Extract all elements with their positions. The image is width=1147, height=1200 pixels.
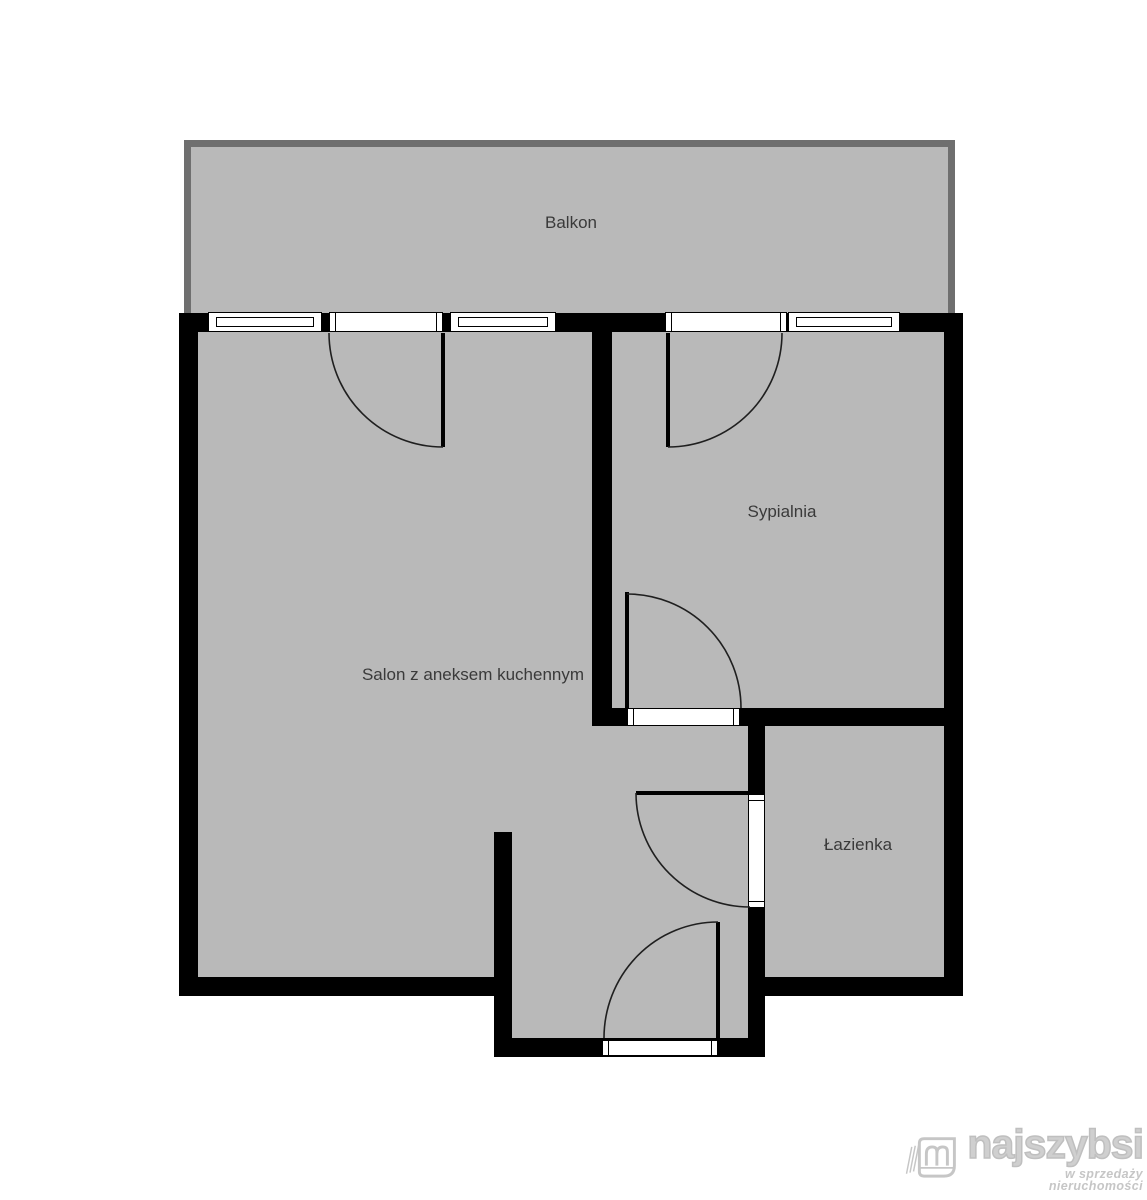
window-glass: [216, 317, 314, 327]
hallway-area: [512, 708, 748, 1038]
bedroom-label: Sypialnia: [748, 502, 817, 522]
window: [450, 312, 556, 332]
brand-tagline: w sprzedaży nieruchomości: [967, 1168, 1143, 1193]
door-frame-post: [711, 1041, 712, 1055]
brand-text-block: najszybsi w sprzedaży nieruchomości: [967, 1124, 1143, 1193]
brand-watermark: najszybsi w sprzedaży nieruchomości: [903, 1122, 1143, 1194]
brand-name: najszybsi: [967, 1124, 1143, 1165]
door-frame-post: [749, 800, 764, 801]
window-glass: [796, 317, 892, 327]
bathroom-door-opening: [748, 794, 765, 908]
door-frame-post: [733, 709, 734, 725]
wall-living-bedroom: [592, 331, 612, 713]
entrance-door-opening: [602, 1040, 718, 1056]
window: [788, 312, 900, 332]
brand-logo-icon: [903, 1123, 961, 1193]
floor-plan: Balkon Salon z aneksem kuchennym Sypialn…: [0, 0, 1147, 1200]
door-frame-post: [436, 313, 437, 331]
door-frame-post: [335, 313, 336, 331]
bedroom-door-opening: [627, 708, 740, 726]
balcony-door-opening-living: [329, 312, 443, 332]
living-room-label: Salon z aneksem kuchennym: [362, 665, 584, 685]
wall-exterior-right: [944, 313, 963, 996]
door-frame-post: [608, 1041, 609, 1055]
wall-exterior-left: [179, 313, 198, 996]
door-frame-post: [671, 313, 672, 331]
wall-bathroom-bottom: [748, 977, 963, 996]
balcony-label: Balkon: [545, 213, 597, 233]
balcony-door-opening-bedroom: [665, 312, 787, 332]
door-frame-post: [633, 709, 634, 725]
door-frame-post: [780, 313, 781, 331]
wall-hallway-left: [494, 832, 512, 1057]
window-glass: [458, 317, 548, 327]
wall-living-bottom: [179, 977, 512, 996]
window: [208, 312, 322, 332]
door-frame-post: [749, 901, 764, 902]
bathroom-label: Łazienka: [824, 835, 892, 855]
